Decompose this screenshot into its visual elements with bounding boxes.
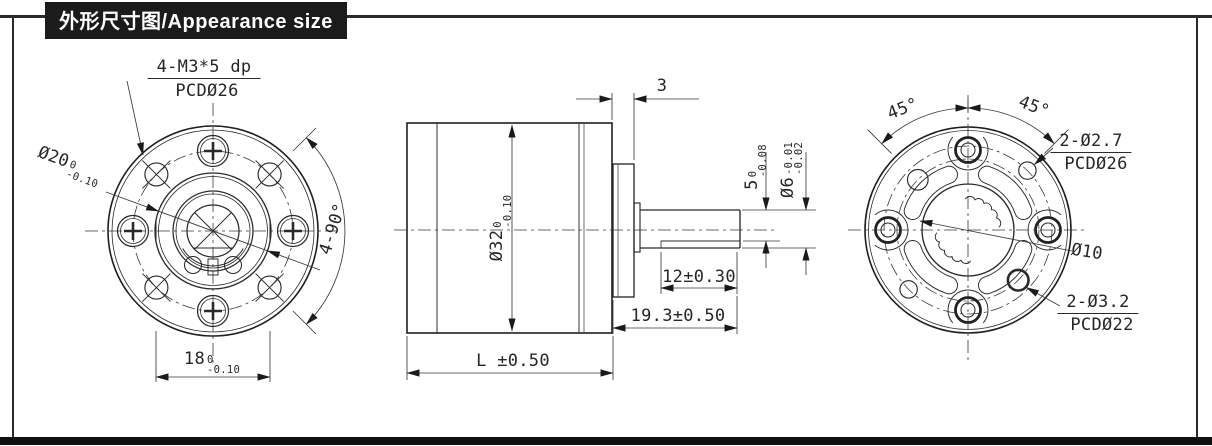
output-flange	[613, 164, 634, 297]
page-title: 外形尺寸图/Appearance size	[59, 11, 333, 33]
drawing-sheet: 外形尺寸图/Appearance size	[0, 0, 1212, 446]
flange-thickness-label: 3	[657, 76, 668, 96]
flat-width-label: 180-0.10	[184, 349, 240, 375]
title-badge: 外形尺寸图/Appearance size	[45, 2, 347, 39]
small-hole-pcd-label: PCDØ26	[1064, 154, 1127, 174]
output-shaft	[640, 210, 740, 248]
small-hole-callout-label: 2-Ø2.7	[1050, 131, 1131, 153]
shaft-length-label: 19.3±0.50	[631, 306, 726, 326]
shaft-flat-height-label: 50-0.08	[742, 144, 768, 190]
thread-pcd-label: PCDØ26	[175, 81, 238, 101]
thread-callout-label: 4-M3*5 dp	[148, 57, 261, 79]
large-hole-callout-label: 2-Ø3.2	[1057, 292, 1138, 314]
flat-length-label: 12±0.30	[662, 267, 736, 287]
side-view-drawing	[394, 123, 778, 333]
front-view-drawing	[85, 103, 345, 382]
body-length-label: L ±0.50	[476, 351, 550, 371]
shaft-hub	[634, 203, 640, 252]
body-diameter-label: Ø320-0.10	[487, 195, 513, 262]
large-hole-pcd-label: PCDØ22	[1070, 315, 1133, 335]
shaft-diameter-label: Ø6-0.01-0.02	[778, 142, 804, 198]
